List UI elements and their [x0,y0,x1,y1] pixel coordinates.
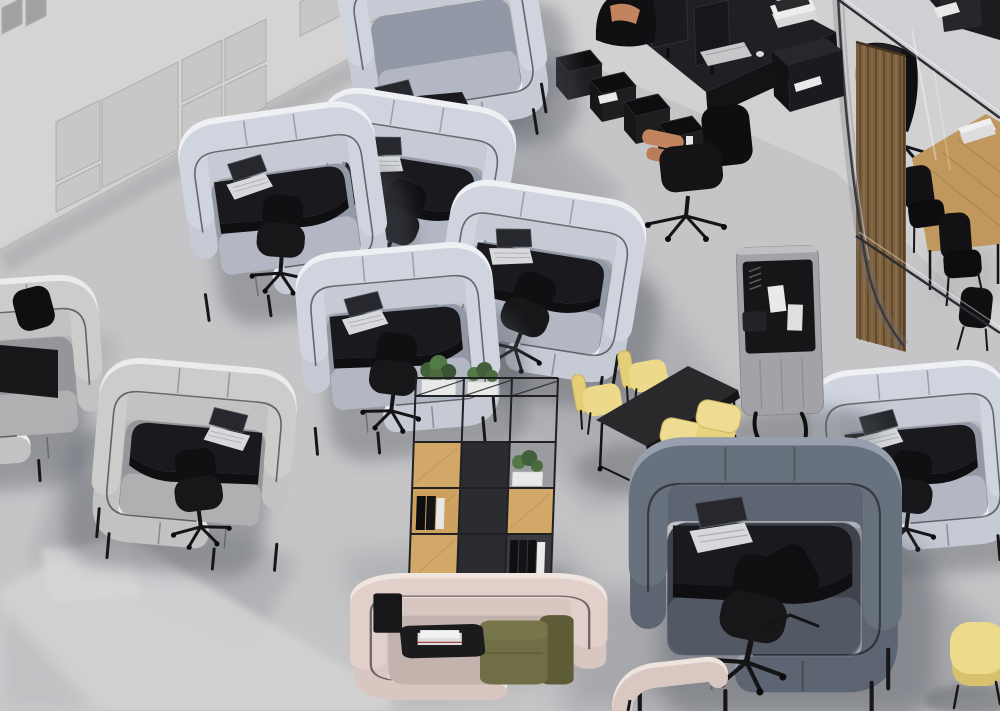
office-scene [0,0,1000,711]
sofa [480,615,574,684]
pinned-paper [787,304,803,331]
wall-screen [373,593,402,632]
books [418,630,462,645]
mouse [756,51,764,57]
tray [742,311,767,332]
lounge-pod-pink [368,582,589,691]
pod-desk [0,345,58,398]
pinned-paper [767,285,786,313]
office-render [0,0,1000,711]
person-seated [596,0,656,47]
